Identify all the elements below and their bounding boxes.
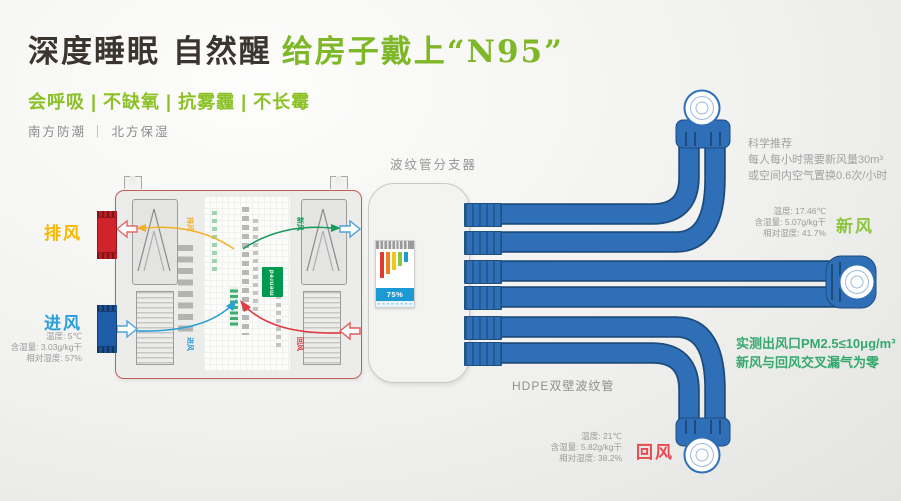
airflow-diagram: 排风 新风 进风 回风 <box>116 191 361 378</box>
return-rh: 相对湿度: 38.2% <box>502 453 622 464</box>
corrugated-stub <box>464 342 502 366</box>
fresh-rh: 相对湿度: 41.7% <box>706 228 826 239</box>
intake-moisture: 含湿量: 3.03g/kg干 <box>6 342 82 353</box>
exhaust-duct-port <box>97 211 117 259</box>
science-line-1: 科学推荐 <box>748 136 887 152</box>
measured-line-1: 实测出风口PM2.5≤10μg/m³ <box>736 334 896 353</box>
science-line-2: 每人每小时需要新风量30m³ <box>748 152 887 168</box>
efficiency-color-bars <box>376 249 414 288</box>
measured-line-2: 新风与回风交叉漏气为零 <box>736 353 896 372</box>
corrugated-stub <box>464 260 502 284</box>
efficiency-value: 75% <box>376 288 414 301</box>
return-air-label: 回风 <box>636 438 674 463</box>
return-in-arrow-icon <box>340 323 360 339</box>
corrugated-stub <box>464 231 502 255</box>
fresh-out-arrow-icon <box>340 221 360 237</box>
bar-green <box>398 252 402 266</box>
infographic-stage: 深度睡眠 自然醒给房子戴上“N95” 会呼吸 | 不缺氧 | 抗雾霾 | 不长霉… <box>0 0 901 501</box>
mounting-bracket-icon <box>330 176 348 189</box>
ceiling-vent-icon <box>676 91 730 149</box>
efficiency-label-header <box>376 241 414 249</box>
return-moisture: 含湿量: 5.82g/kg干 <box>502 442 622 453</box>
science-line-3: 或空间内空气置换0.6次/小时 <box>748 168 887 184</box>
corrugated-stub <box>464 203 502 227</box>
bar-orange <box>386 252 390 274</box>
intake-stats: 温度: 5℃ 含湿量: 3.03g/kg干 相对湿度: 57% <box>6 331 82 364</box>
science-recommendation: 科学推荐 每人每小时需要新风量30m³ 或空间内空气置换0.6次/小时 <box>748 136 887 184</box>
fresh-moisture: 含湿量: 5.07g/kg干 <box>706 217 826 228</box>
inner-label-intake: 进风 <box>186 337 195 351</box>
floor-vent-icon <box>676 418 730 473</box>
fresh-air-label: 新风 <box>836 212 874 237</box>
efficiency-label: 75% <box>375 240 415 308</box>
wall-vent-icon <box>826 256 876 308</box>
bar-blue <box>404 252 408 262</box>
inner-label-fresh: 新风 <box>296 217 305 231</box>
corrugated-stub <box>464 286 502 310</box>
inner-label-return: 回风 <box>296 337 305 351</box>
efficiency-label-footer <box>376 301 414 307</box>
measured-performance: 实测出风口PM2.5≤10μg/m³ 新风与回风交叉漏气为零 <box>736 334 896 372</box>
corrugated-stub <box>464 316 502 340</box>
intake-duct-port <box>97 305 117 353</box>
inner-label-exhaust: 排风 <box>186 217 195 231</box>
bar-red <box>380 252 384 278</box>
hdpe-pipe-caption: HDPE双壁波纹管 <box>512 377 614 394</box>
exhaust-out-arrow-icon <box>117 221 137 237</box>
bar-yellow <box>392 252 396 270</box>
fresh-air-stats: 温度: 17.46℃ 含湿量: 5.07g/kg干 相对湿度: 41.7% <box>706 206 826 239</box>
exhaust-label: 排风 <box>28 219 82 244</box>
intake-in-arrow-icon <box>117 321 137 337</box>
splitter-caption: 波纹管分支器 <box>390 154 477 173</box>
return-temp: 温度: 21℃ <box>502 431 622 442</box>
fresh-temp: 温度: 17.46℃ <box>706 206 826 217</box>
erv-unit: menred <box>115 190 362 379</box>
return-air-stats: 温度: 21℃ 含湿量: 5.82g/kg干 相对湿度: 38.2% <box>502 431 622 464</box>
intake-temp: 温度: 5℃ <box>6 331 82 342</box>
mounting-bracket-icon <box>124 176 142 189</box>
intake-rh: 相对湿度: 57% <box>6 353 82 364</box>
